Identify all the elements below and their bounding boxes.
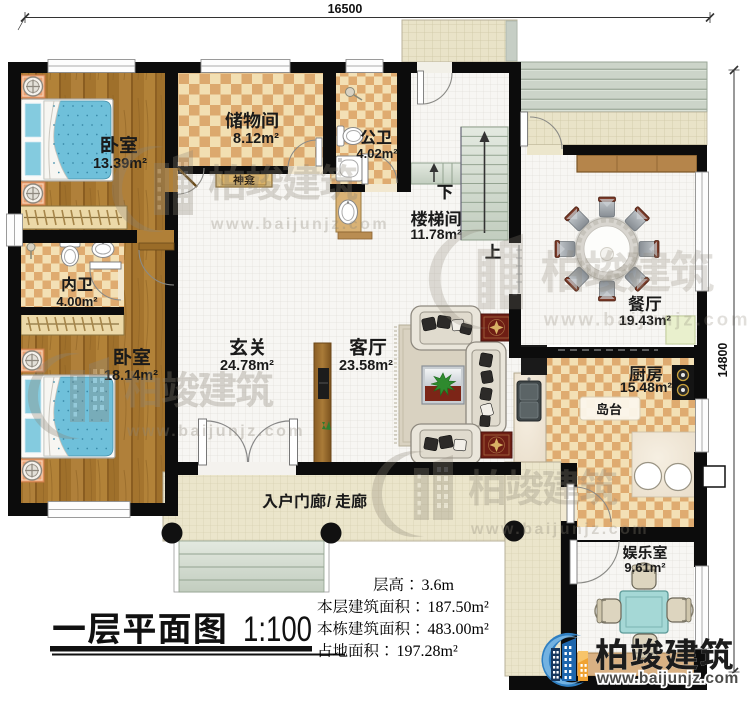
svg-text:www.baijunjz.com: www.baijunjz.com [596,670,739,687]
svg-text:3.6m: 3.6m [422,577,455,594]
svg-text:24.78m²: 24.78m² [220,358,274,374]
svg-text:1:100: 1:100 [243,610,312,649]
svg-text:www.baijunjz.com: www.baijunjz.com [210,216,389,233]
svg-text:4.02m²: 4.02m² [356,146,398,161]
svg-text:4.00m²: 4.00m² [56,294,98,309]
svg-text:197.28m²: 197.28m² [397,643,458,660]
svg-text:14800: 14800 [716,343,730,378]
svg-text:www.baijunjz.com: www.baijunjz.com [543,308,750,329]
svg-text:483.00m²: 483.00m² [428,621,489,638]
svg-text:www.baijunjz.com: www.baijunjz.com [126,423,305,440]
svg-text:23.58m²: 23.58m² [339,358,393,374]
svg-text:www.baijunjz.com: www.baijunjz.com [470,521,649,538]
svg-text:15.48m²: 15.48m² [620,379,672,395]
svg-text:16500: 16500 [328,2,363,16]
svg-text:187.50m²: 187.50m² [428,599,489,616]
svg-text:8.12m²: 8.12m² [233,131,279,147]
svg-text:9.61m²: 9.61m² [624,560,666,575]
